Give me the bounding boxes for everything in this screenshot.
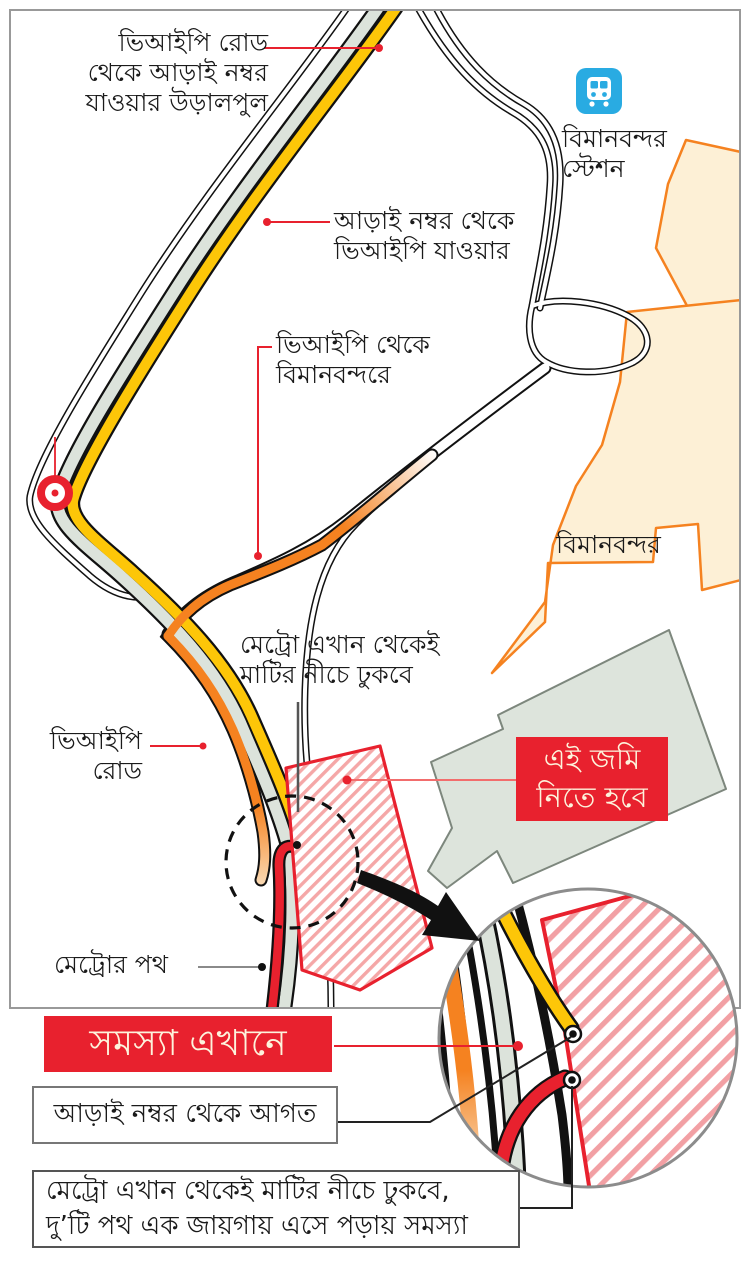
label-airport: বিমানবন্দর: [556, 530, 726, 560]
train-icon: [576, 68, 622, 114]
label-flyover: ভিআইপি রোড থেকে আড়াই নম্বর যাওয়ার উড়া…: [20, 28, 268, 118]
label-vip-road: ভিআইপি রোড: [22, 726, 142, 786]
infographic-map: ভিআইপি রোড থেকে আড়াই নম্বর যাওয়ার উড়া…: [0, 0, 750, 1275]
inset-magnifier: [427, 878, 750, 1192]
label-station: বিমানবন্দর স্টেশন: [562, 124, 742, 184]
junction-dot: [293, 841, 301, 849]
label-arai-to-vip: আড়াই নম্বর থেকে ভিআইপি যাওয়ার: [334, 206, 574, 266]
callout-land-needed: এই জমি নিতে হবে: [516, 737, 668, 821]
label-metro-underground: মেট্রো এখান থেকেই মাটির নীচে ঢুকবে: [240, 630, 490, 690]
label-metro-path: মেট্রোর পথ: [54, 950, 214, 980]
callout-problem-here: সমস্যা এখানে: [44, 1016, 332, 1072]
label-vip-to-airport: ভিআইপি থেকে বিমানবন্দরে: [276, 330, 486, 390]
callout-from-arai: আড়াই নম্বর থেকে আগত: [32, 1086, 338, 1144]
callout-bottom-note: মেট্রো এখান থেকেই মাটির নীচে ঢুকবে, দু’ট…: [32, 1170, 520, 1248]
ring-marker-dot: [52, 490, 59, 497]
airport-area-main: [492, 300, 741, 673]
train-glyph: [582, 74, 616, 108]
